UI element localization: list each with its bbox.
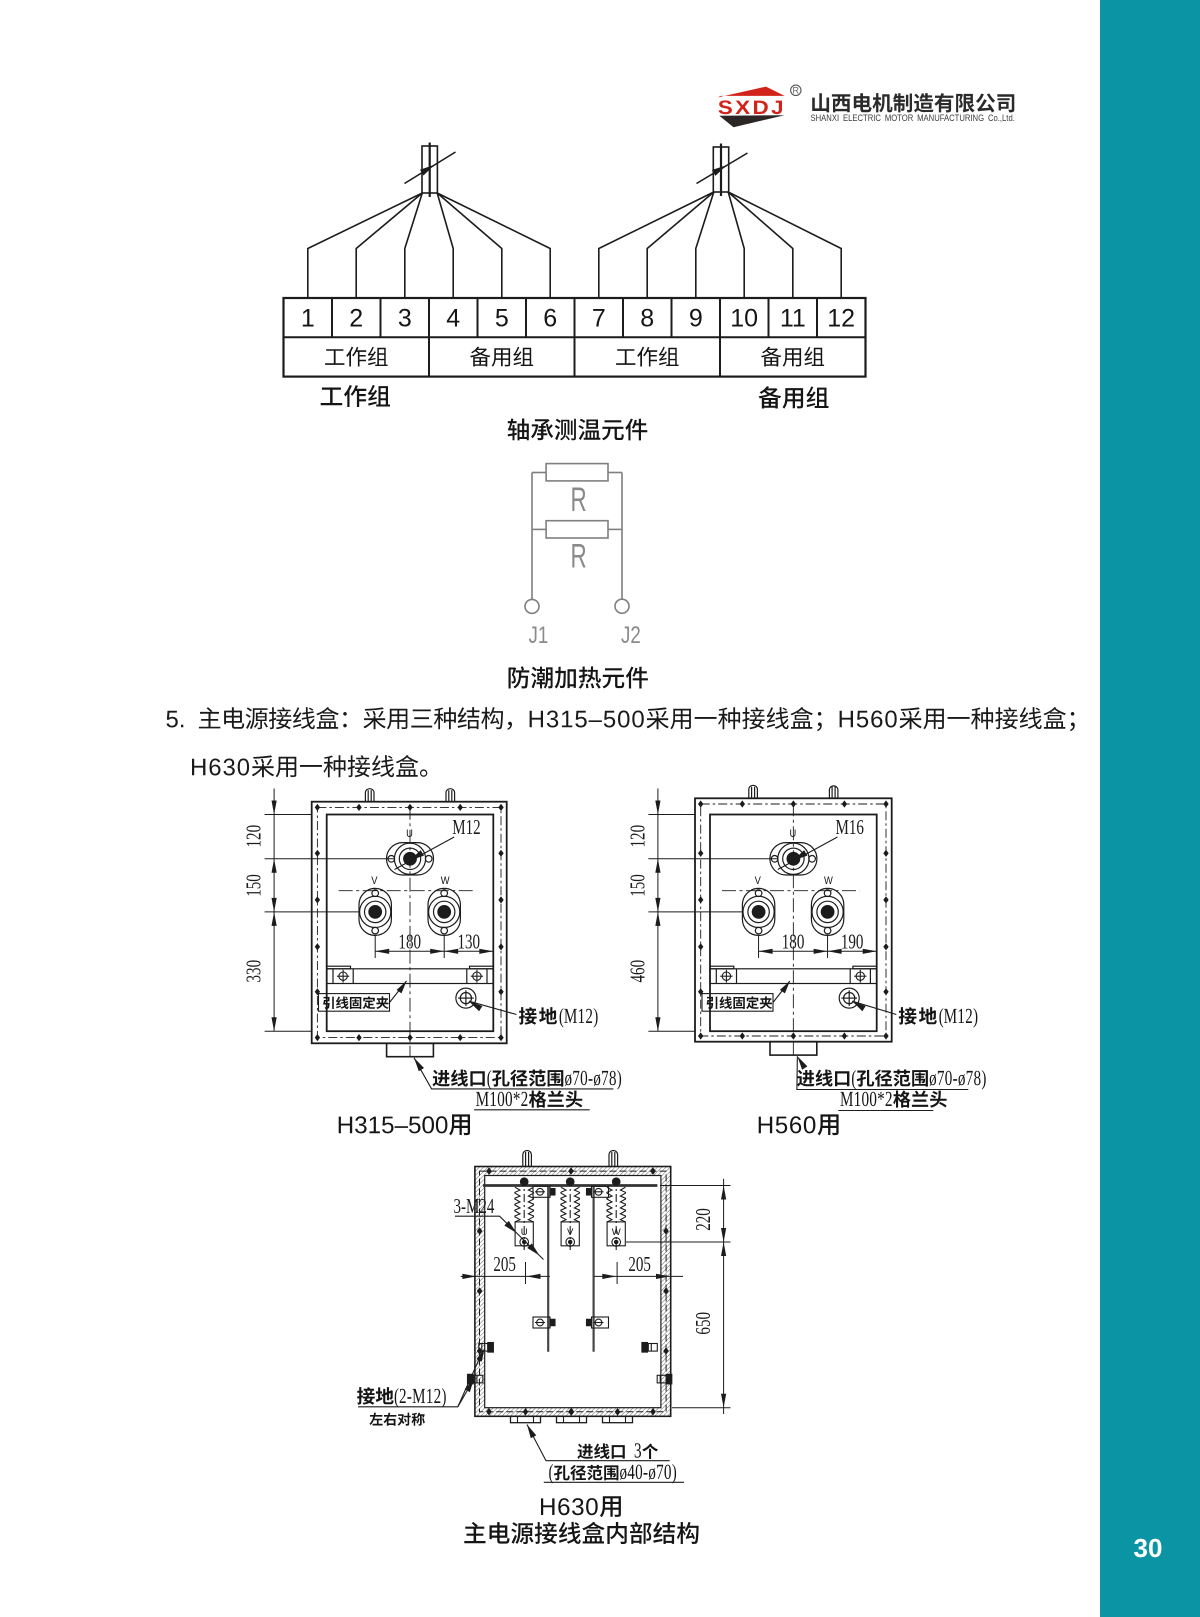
svg-text:120: 120 [242,825,266,848]
svg-text:5: 5 [495,305,509,333]
svg-text:190: 190 [841,930,864,954]
svg-text:6: 6 [543,305,557,333]
svg-text:U: U [406,828,413,840]
svg-text:3-M24: 3-M24 [454,1195,495,1219]
svg-text:U: U [521,1227,528,1238]
svg-text:330: 330 [242,960,266,983]
svg-text:150: 150 [626,874,650,897]
svg-text:3: 3 [398,305,412,333]
svg-text:SHANXI ELECTRIC MOTOR MANUFACT: SHANXI ELECTRIC MOTOR MANUFACTURING Co.,… [811,112,1015,123]
svg-text:R: R [571,481,587,519]
svg-text:W: W [612,1227,621,1238]
svg-text:R: R [793,86,800,96]
svg-text:8: 8 [640,305,654,333]
svg-text:9: 9 [689,305,703,333]
svg-text:M12: M12 [452,815,480,839]
svg-text:130: 130 [457,930,480,954]
svg-text:30: 30 [1134,1533,1163,1563]
svg-text:220: 220 [692,1208,716,1231]
svg-text:J2: J2 [621,622,641,649]
svg-text:2: 2 [349,305,363,333]
svg-text:V: V [755,876,761,888]
svg-text:10: 10 [730,305,758,333]
svg-text:120: 120 [626,825,650,848]
svg-text:150: 150 [242,874,266,897]
svg-text:1: 1 [301,305,315,333]
svg-text:V: V [371,876,377,888]
svg-text:650: 650 [692,1312,716,1335]
svg-text:7: 7 [592,305,606,333]
svg-text:U: U [789,828,796,840]
svg-text:R: R [571,538,587,576]
svg-text:205: 205 [493,1253,516,1277]
svg-text:W: W [441,876,450,888]
svg-text:12: 12 [827,305,855,333]
svg-text:4: 4 [446,305,460,333]
svg-text:11: 11 [780,305,806,333]
svg-text:J1: J1 [529,622,549,649]
svg-text:205: 205 [628,1253,651,1277]
svg-text:W: W [824,876,833,888]
svg-text:V: V [567,1227,574,1238]
svg-text:460: 460 [626,960,650,983]
svg-text:180: 180 [782,930,805,954]
svg-text:180: 180 [398,930,421,954]
svg-text:M16: M16 [836,815,864,839]
